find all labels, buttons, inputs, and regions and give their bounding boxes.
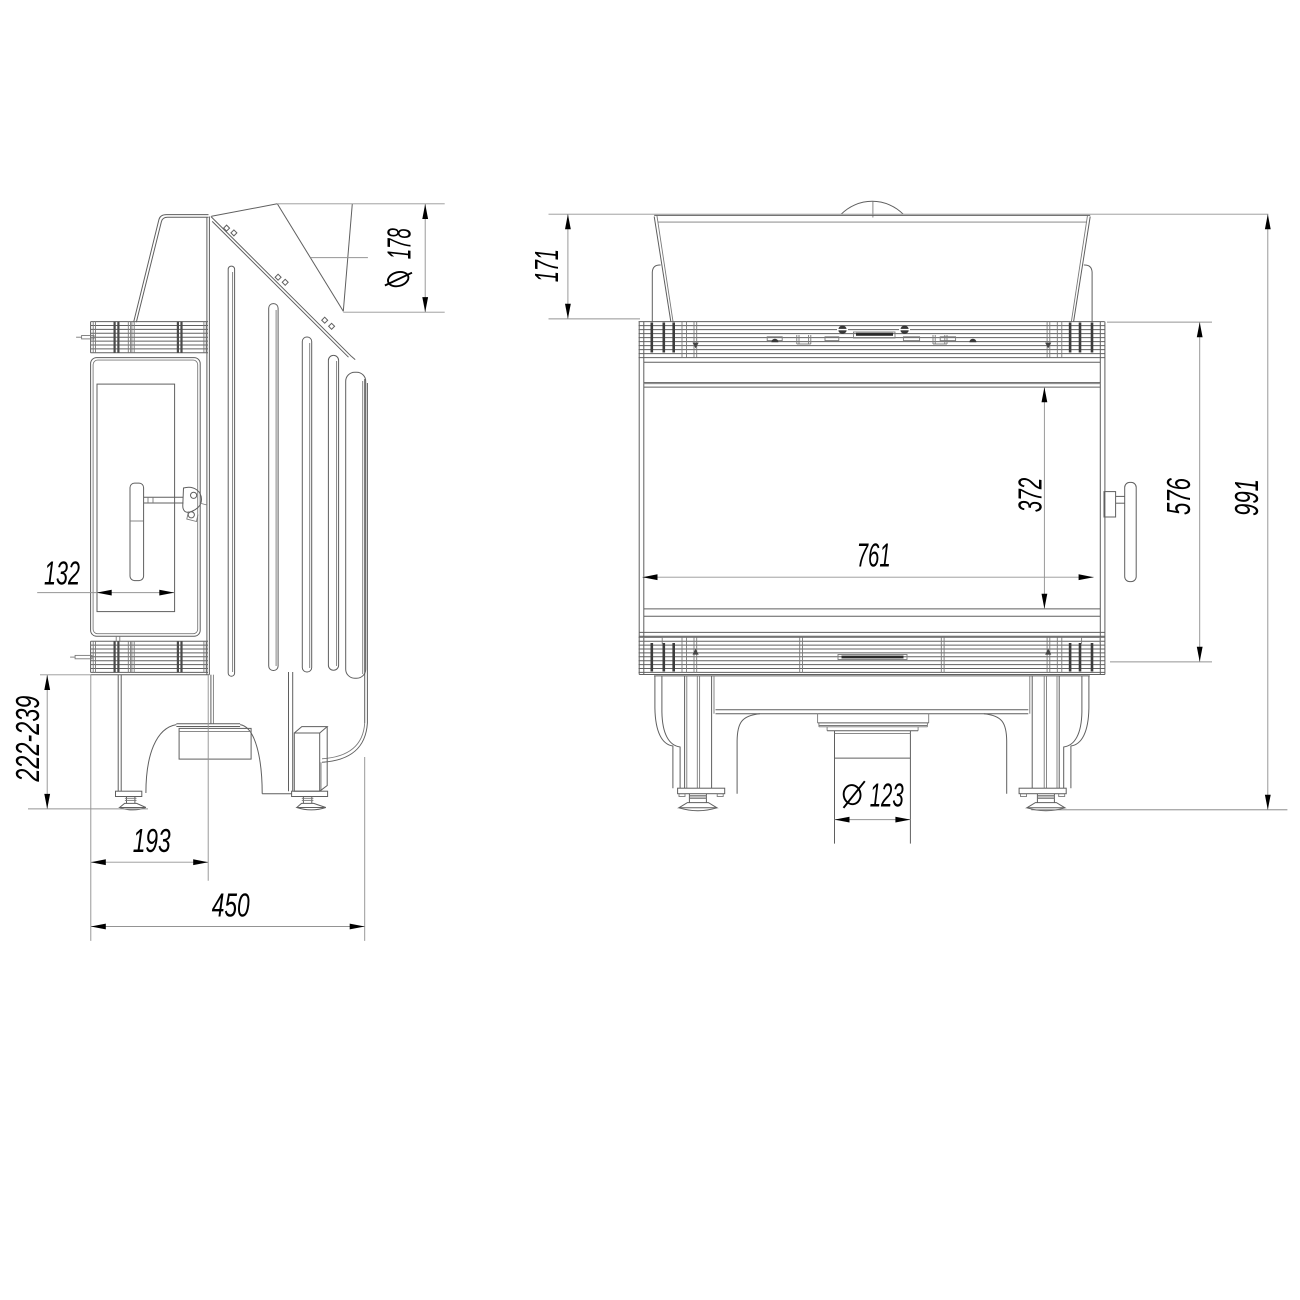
svg-text:576: 576 [1160, 478, 1197, 515]
svg-text:193: 193 [133, 822, 171, 859]
svg-text:991: 991 [1228, 479, 1265, 516]
svg-text:123: 123 [870, 776, 904, 813]
svg-text:171: 171 [528, 249, 565, 282]
svg-text:761: 761 [857, 537, 891, 574]
svg-text:222-239: 222-239 [9, 696, 46, 783]
svg-text:372: 372 [1012, 478, 1049, 513]
svg-text:132: 132 [44, 555, 80, 592]
svg-text:178: 178 [381, 228, 418, 259]
svg-text:450: 450 [212, 887, 250, 924]
